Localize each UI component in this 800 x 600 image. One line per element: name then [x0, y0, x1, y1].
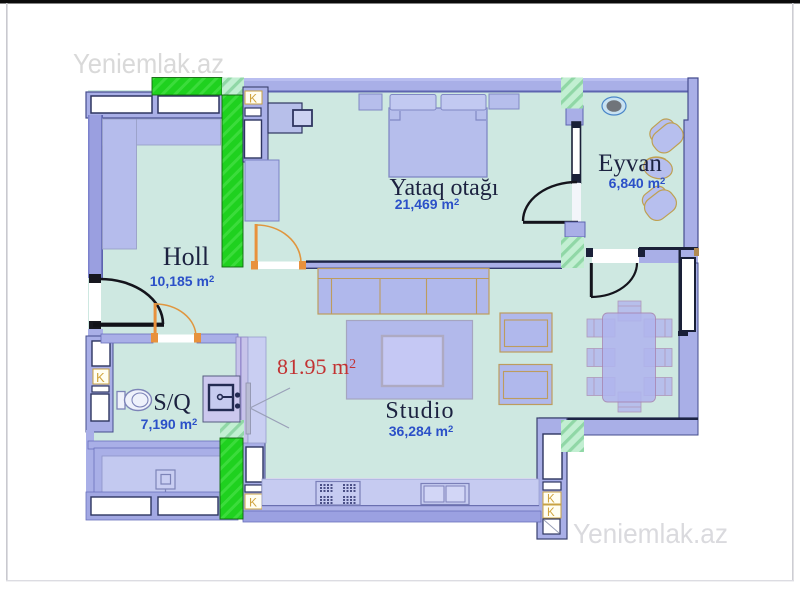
svg-text:K: K: [249, 92, 257, 106]
svg-text:Studio: Studio: [385, 398, 454, 424]
svg-text:K: K: [547, 507, 555, 519]
svg-text:Holl: Holl: [163, 242, 209, 271]
svg-text:36,284 m2: 36,284 m2: [389, 423, 453, 439]
svg-text:Yeniemlak.az: Yeniemlak.az: [573, 518, 728, 549]
svg-text:K: K: [249, 496, 257, 510]
svg-text:S/Q: S/Q: [153, 390, 190, 416]
svg-text:K: K: [96, 370, 105, 385]
svg-text:Yeniemlak.az: Yeniemlak.az: [73, 48, 224, 79]
svg-text:Eyvan: Eyvan: [598, 150, 662, 177]
svg-text:7,190 m2: 7,190 m2: [141, 416, 198, 432]
svg-text:21,469 m2: 21,469 m2: [395, 196, 459, 212]
svg-text:81.95 m2: 81.95 m2: [277, 354, 356, 379]
svg-text:10,185 m2: 10,185 m2: [150, 273, 214, 289]
svg-text:6,840 m2: 6,840 m2: [609, 175, 666, 191]
svg-text:K: K: [547, 494, 555, 506]
